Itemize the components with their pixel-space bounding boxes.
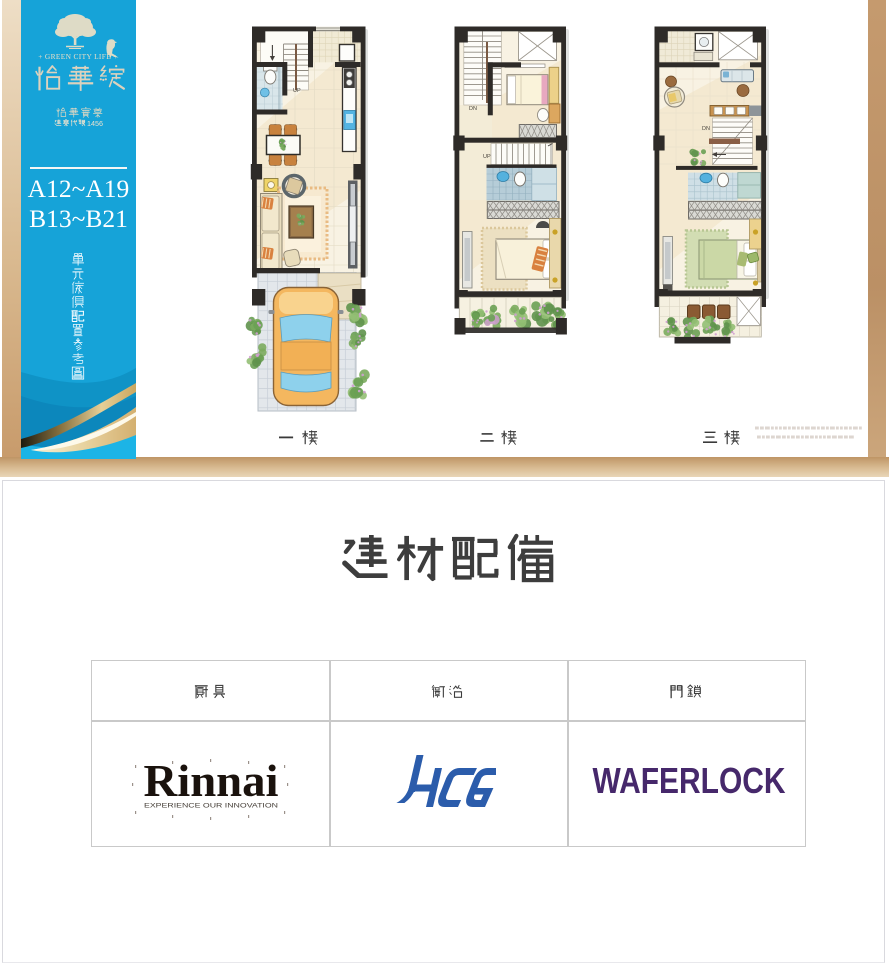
svg-text:UP: UP bbox=[293, 88, 301, 94]
svg-text:EXPERIENCE OUR INNOVATION: EXPERIENCE OUR INNOVATION bbox=[144, 803, 278, 810]
svg-text:WAFERLOCK: WAFERLOCK bbox=[593, 766, 786, 798]
svg-text:DN: DN bbox=[702, 126, 710, 132]
svg-text:1456: 1456 bbox=[87, 119, 103, 128]
svg-text:+ GREEN CITY LIFE +: + GREEN CITY LIFE + bbox=[38, 52, 118, 61]
svg-text:Rinnai: Rinnai bbox=[144, 755, 279, 806]
svg-text:DN: DN bbox=[469, 106, 477, 112]
svg-text:UP: UP bbox=[483, 154, 491, 160]
